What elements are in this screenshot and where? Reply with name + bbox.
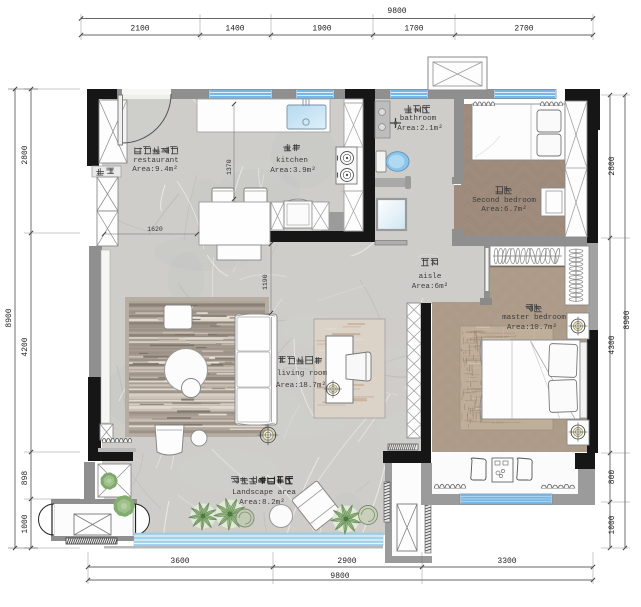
svg-text:1000: 1000 xyxy=(608,515,617,534)
svg-text:2800: 2800 xyxy=(21,145,30,164)
svg-text:8900: 8900 xyxy=(5,308,14,327)
svg-text:9800: 9800 xyxy=(387,7,406,16)
svg-text:living room: living room xyxy=(277,370,328,378)
svg-text:restaurant: restaurant xyxy=(133,157,179,165)
svg-text:Area:2.1m²: Area:2.1m² xyxy=(397,124,443,133)
svg-text:9800: 9800 xyxy=(330,572,349,581)
svg-text:1000: 1000 xyxy=(21,514,30,533)
svg-text:1900: 1900 xyxy=(312,25,331,34)
svg-text:aisle: aisle xyxy=(419,273,442,281)
svg-text:Area:3.9m²: Area:3.9m² xyxy=(270,166,316,175)
svg-text:3300: 3300 xyxy=(497,557,516,566)
svg-text:898: 898 xyxy=(21,471,30,486)
svg-text:1190: 1190 xyxy=(262,274,269,290)
svg-text:8900: 8900 xyxy=(623,310,632,329)
svg-text:Area:6.7m²: Area:6.7m² xyxy=(481,205,527,214)
svg-text:Area:9.4m²: Area:9.4m² xyxy=(132,165,178,174)
svg-text:Landscape area: Landscape area xyxy=(232,489,296,497)
svg-text:master bedroom: master bedroom xyxy=(502,314,566,322)
svg-text:Area:18.7m²: Area:18.7m² xyxy=(276,381,326,390)
svg-text:2100: 2100 xyxy=(130,25,149,34)
svg-text:3600: 3600 xyxy=(170,557,189,566)
svg-text:1700: 1700 xyxy=(404,25,423,34)
svg-text:Area:6m²: Area:6m² xyxy=(412,282,448,291)
svg-text:Second bedroom: Second bedroom xyxy=(472,197,536,205)
svg-text:4200: 4200 xyxy=(21,337,30,356)
svg-text:Area:10.7m²: Area:10.7m² xyxy=(507,323,557,332)
svg-text:Area:8.2m²: Area:8.2m² xyxy=(239,498,285,507)
svg-text:2900: 2900 xyxy=(337,557,356,566)
svg-text:1370: 1370 xyxy=(226,159,233,175)
svg-text:1400: 1400 xyxy=(225,25,244,34)
svg-text:800: 800 xyxy=(608,470,617,485)
svg-text:1620: 1620 xyxy=(147,226,163,233)
svg-text:2700: 2700 xyxy=(514,25,533,34)
svg-text:2800: 2800 xyxy=(608,156,617,175)
svg-text:kitchen: kitchen xyxy=(276,157,308,165)
svg-text:bathroom: bathroom xyxy=(400,115,437,123)
svg-text:4300: 4300 xyxy=(608,335,617,354)
